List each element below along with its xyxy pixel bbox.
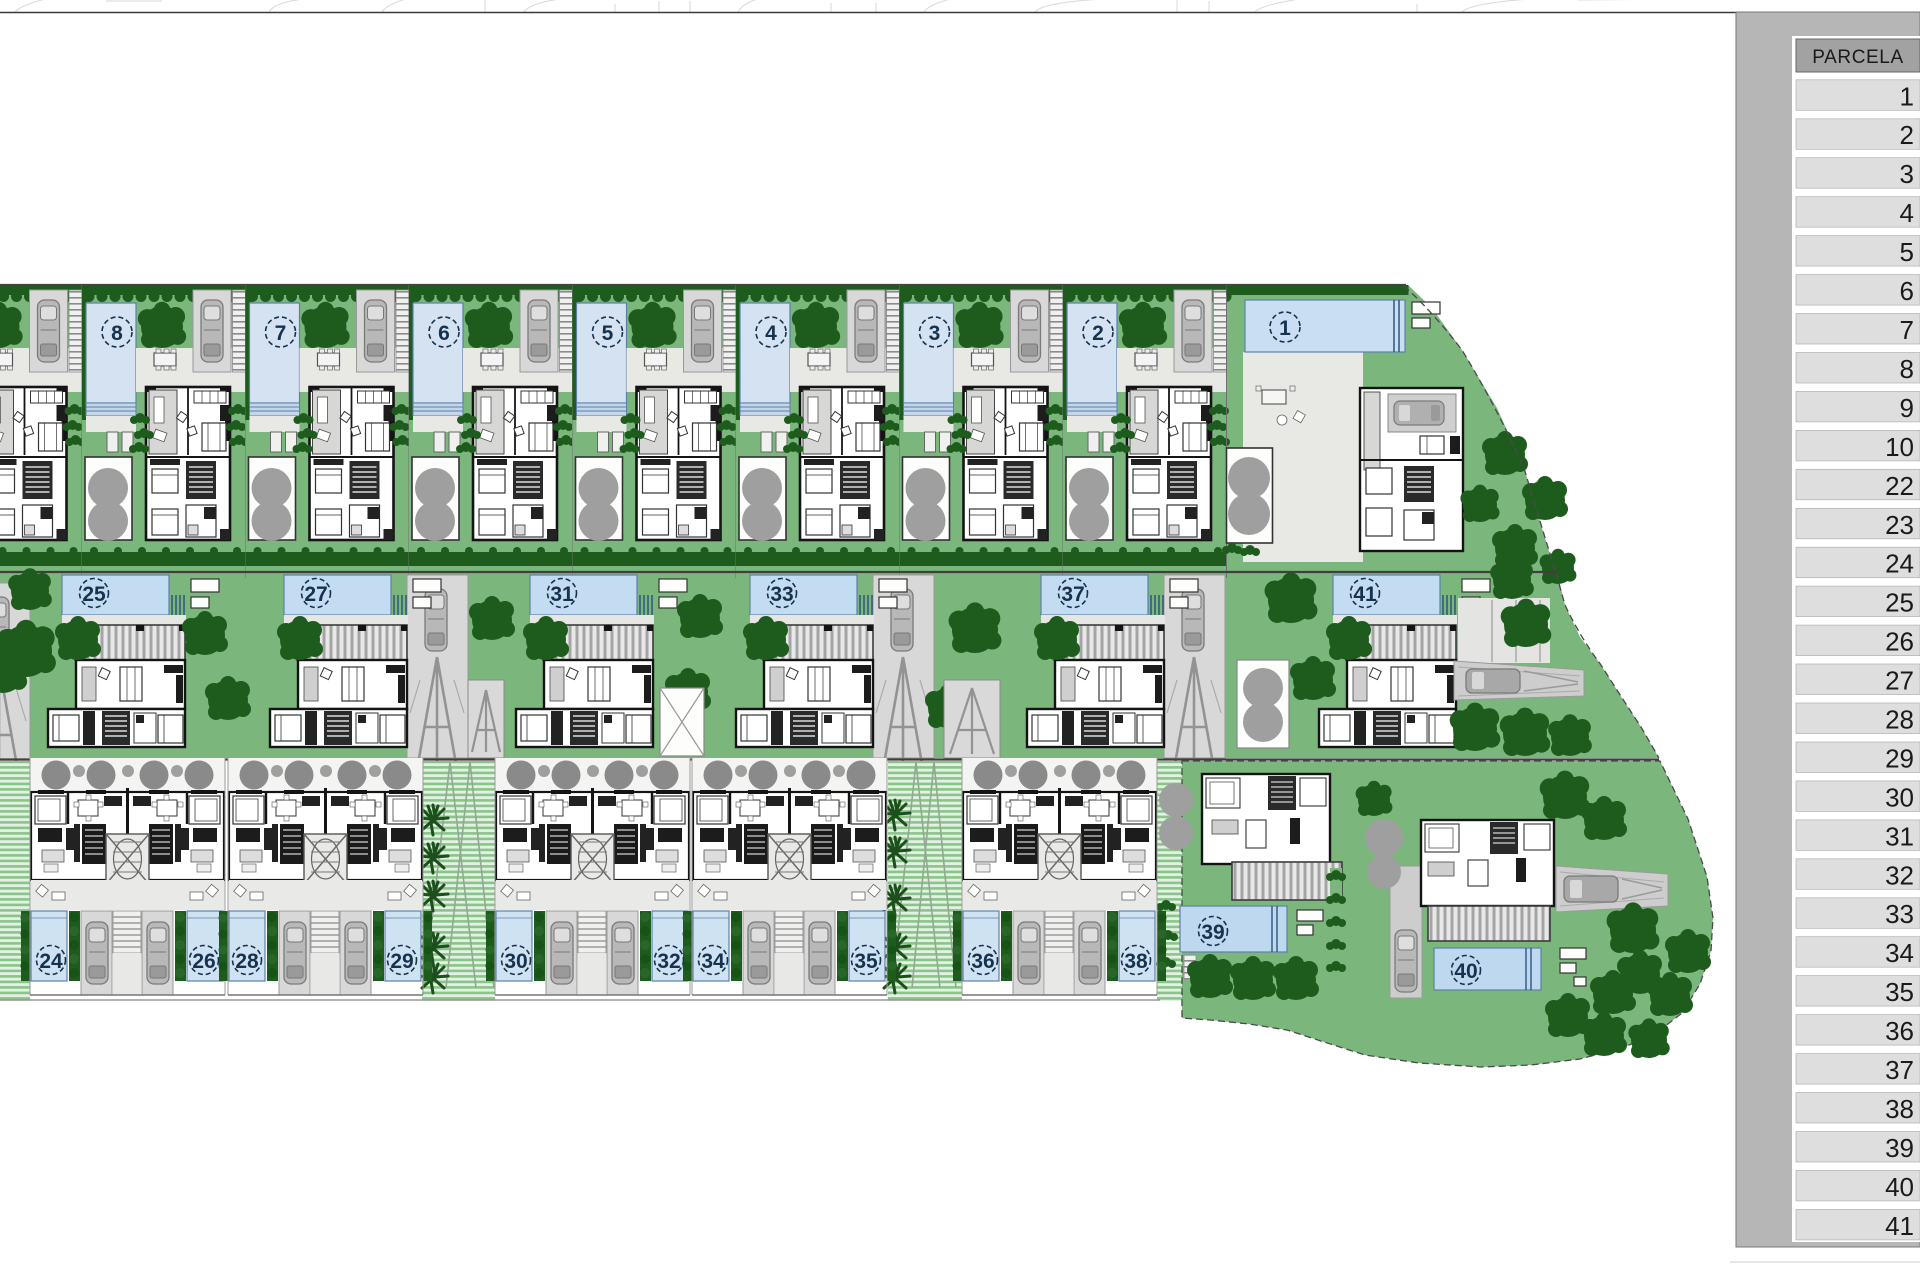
svg-text:27: 27	[1885, 666, 1914, 696]
svg-text:36: 36	[971, 950, 994, 973]
svg-text:35: 35	[1885, 977, 1914, 1007]
svg-text:39: 39	[1201, 921, 1224, 944]
svg-text:31: 31	[550, 583, 574, 606]
svg-text:8: 8	[111, 322, 123, 345]
svg-text:23: 23	[1885, 510, 1914, 540]
svg-text:5: 5	[602, 322, 614, 345]
svg-text:28: 28	[235, 950, 259, 973]
svg-text:41: 41	[1885, 1211, 1914, 1241]
svg-text:41: 41	[1353, 583, 1377, 606]
svg-text:29: 29	[390, 950, 413, 973]
svg-text:40: 40	[1885, 1172, 1914, 1202]
svg-text:7: 7	[1900, 315, 1914, 345]
svg-text:24: 24	[39, 950, 63, 973]
svg-text:7: 7	[275, 322, 287, 345]
svg-text:1: 1	[1900, 81, 1914, 111]
svg-text:25: 25	[82, 583, 106, 606]
svg-text:9: 9	[1900, 393, 1914, 423]
svg-text:3: 3	[929, 322, 941, 345]
svg-text:33: 33	[770, 583, 793, 606]
svg-text:5: 5	[1900, 237, 1914, 267]
svg-text:30: 30	[1885, 782, 1914, 812]
svg-text:8: 8	[1900, 354, 1914, 384]
svg-text:34: 34	[1885, 938, 1914, 968]
svg-text:6: 6	[438, 322, 450, 345]
svg-text:27: 27	[304, 583, 327, 606]
svg-text:28: 28	[1885, 705, 1914, 735]
svg-text:26: 26	[1885, 627, 1914, 657]
svg-text:22: 22	[1885, 471, 1914, 501]
svg-text:4: 4	[1900, 198, 1914, 228]
svg-text:37: 37	[1885, 1055, 1914, 1085]
svg-text:40: 40	[1454, 960, 1477, 983]
svg-text:4: 4	[765, 322, 777, 345]
svg-text:25: 25	[1885, 588, 1914, 618]
svg-text:30: 30	[504, 950, 527, 973]
svg-text:26: 26	[192, 950, 215, 973]
svg-text:32: 32	[657, 950, 680, 973]
svg-text:2: 2	[1900, 120, 1914, 150]
svg-text:34: 34	[701, 950, 725, 973]
svg-text:33: 33	[1885, 899, 1914, 929]
svg-text:3: 3	[1900, 159, 1914, 189]
svg-text:38: 38	[1124, 950, 1148, 973]
svg-text:2: 2	[1092, 322, 1104, 345]
svg-text:38: 38	[1885, 1094, 1914, 1124]
svg-text:37: 37	[1061, 583, 1084, 606]
svg-text:39: 39	[1885, 1133, 1914, 1163]
svg-text:31: 31	[1885, 821, 1914, 851]
svg-text:32: 32	[1885, 860, 1914, 890]
svg-text:35: 35	[854, 950, 878, 973]
svg-text:24: 24	[1885, 549, 1914, 579]
svg-text:10: 10	[1885, 432, 1914, 462]
svg-text:6: 6	[1900, 276, 1914, 306]
svg-text:1: 1	[1279, 317, 1291, 340]
svg-text:PARCELA: PARCELA	[1812, 47, 1904, 68]
svg-text:36: 36	[1885, 1016, 1914, 1046]
svg-text:29: 29	[1885, 744, 1914, 774]
